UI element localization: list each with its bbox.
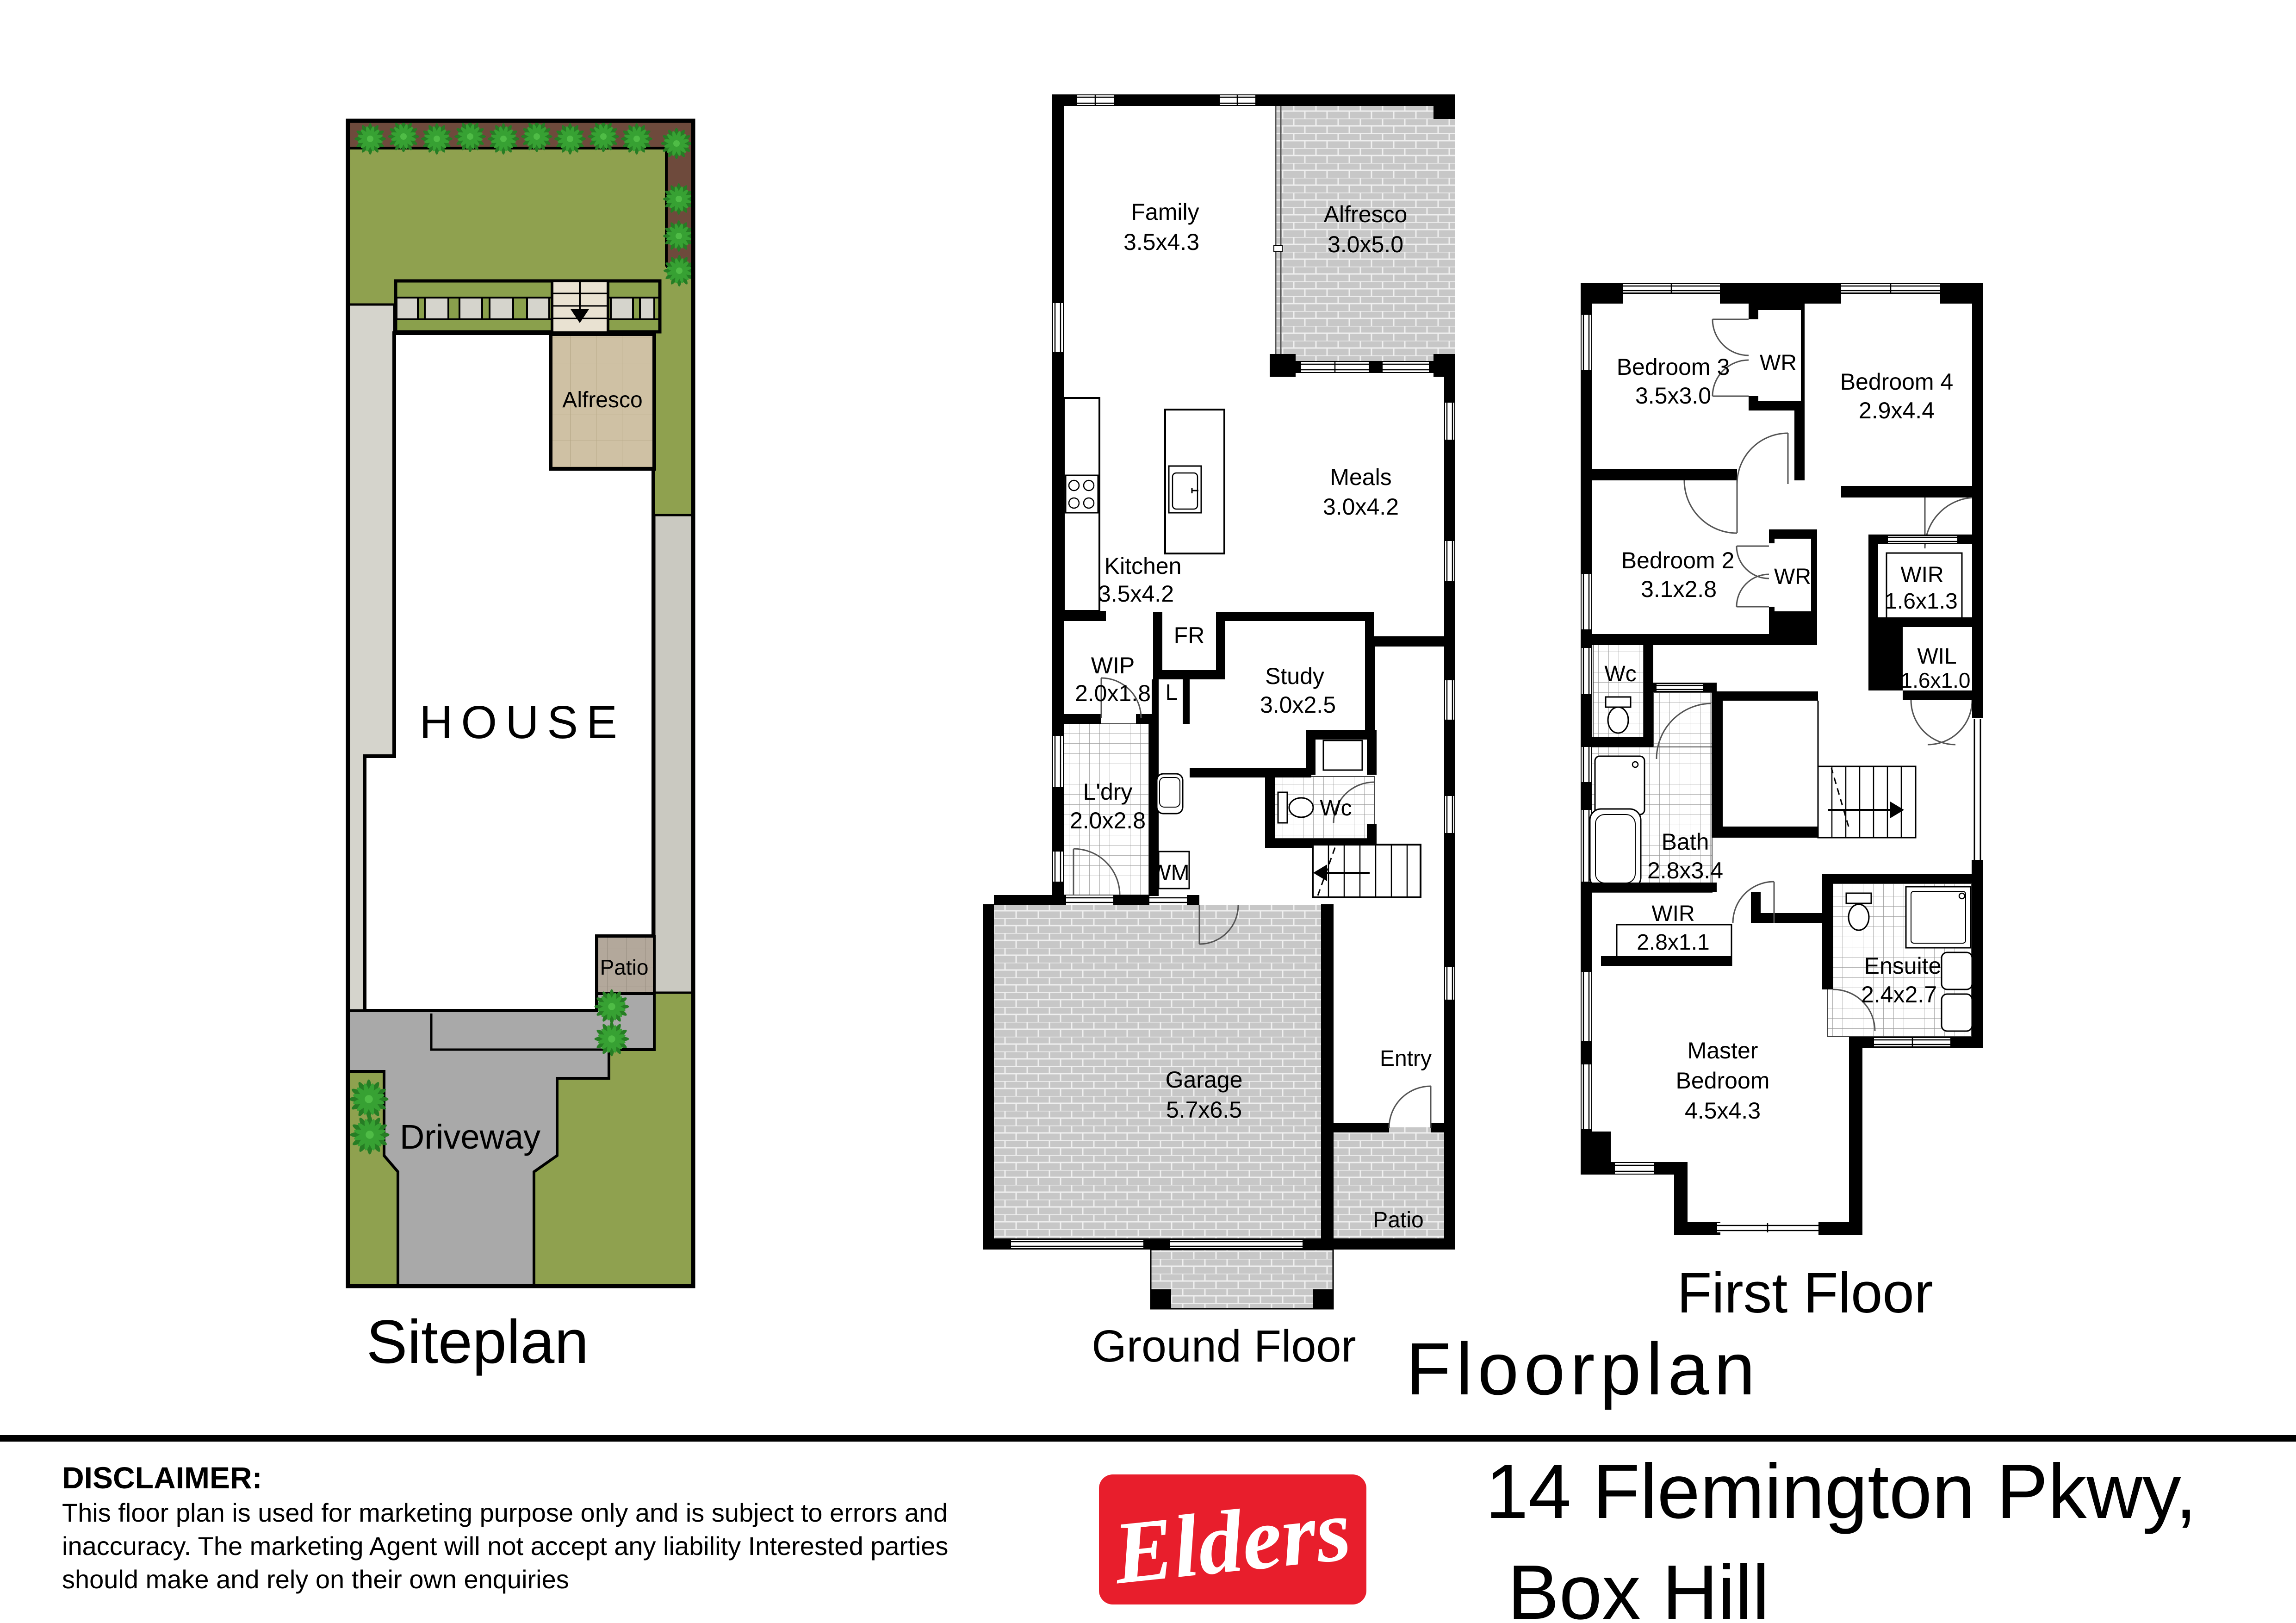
svg-text:Patio: Patio xyxy=(600,955,649,979)
svg-text:Garage: Garage xyxy=(1166,1067,1243,1093)
svg-text:Bedroom 4: Bedroom 4 xyxy=(1840,369,1954,395)
svg-text:Kitchen: Kitchen xyxy=(1105,553,1182,579)
svg-text:1.6x1.3: 1.6x1.3 xyxy=(1885,589,1957,614)
svg-text:WIR: WIR xyxy=(1900,563,1943,587)
svg-text:L'dry: L'dry xyxy=(1083,779,1133,805)
svg-text:FR: FR xyxy=(1174,622,1205,648)
svg-text:3.0x5.0: 3.0x5.0 xyxy=(1328,231,1403,257)
svg-text:Floorplan: Floorplan xyxy=(1406,1327,1760,1410)
svg-text:3.1x2.8: 3.1x2.8 xyxy=(1641,576,1717,602)
svg-text:Entry: Entry xyxy=(1380,1046,1432,1071)
svg-text:3.0x4.2: 3.0x4.2 xyxy=(1323,494,1399,520)
svg-text:Bedroom 3: Bedroom 3 xyxy=(1617,354,1730,380)
svg-text:3.5x4.3: 3.5x4.3 xyxy=(1123,229,1199,255)
svg-text:Wc: Wc xyxy=(1604,662,1636,686)
svg-text:WIL: WIL xyxy=(1917,644,1956,669)
svg-text:1.6x1.0: 1.6x1.0 xyxy=(1901,668,1971,692)
svg-text:WR: WR xyxy=(1774,565,1811,589)
svg-text:Master: Master xyxy=(1688,1038,1758,1063)
svg-text:Box Hill: Box Hill xyxy=(1508,1549,1769,1623)
svg-text:WR: WR xyxy=(1760,351,1797,375)
svg-text:2.4x2.7: 2.4x2.7 xyxy=(1861,982,1937,1007)
svg-text:Ensuite: Ensuite xyxy=(1864,953,1942,979)
svg-text:First Floor: First Floor xyxy=(1677,1262,1933,1325)
svg-text:4.5x4.3: 4.5x4.3 xyxy=(1685,1098,1761,1124)
svg-text:WIP: WIP xyxy=(1091,653,1135,678)
svg-text:L: L xyxy=(1166,680,1178,705)
svg-text:Bedroom: Bedroom xyxy=(1676,1068,1770,1094)
svg-text:3.5x4.2: 3.5x4.2 xyxy=(1098,581,1174,607)
svg-text:HOUSE: HOUSE xyxy=(419,696,626,748)
svg-text:Study: Study xyxy=(1265,663,1324,689)
svg-text:This floor plan is used for ma: This floor plan is used for marketing pu… xyxy=(62,1498,948,1527)
svg-text:inaccuracy. The marketing Agen: inaccuracy. The marketing Agent will not… xyxy=(62,1531,948,1561)
svg-text:2.9x4.4: 2.9x4.4 xyxy=(1859,398,1935,423)
svg-text:2.0x2.8: 2.0x2.8 xyxy=(1070,808,1146,833)
svg-text:WM: WM xyxy=(1150,861,1189,885)
svg-text:Wc: Wc xyxy=(1320,796,1352,821)
svg-text:2.8x1.1: 2.8x1.1 xyxy=(1637,930,1709,955)
svg-text:Ground Floor: Ground Floor xyxy=(1092,1321,1356,1371)
svg-text:Bath: Bath xyxy=(1662,829,1709,855)
svg-text:3.5x3.0: 3.5x3.0 xyxy=(1635,383,1711,409)
svg-text:Family: Family xyxy=(1131,199,1199,225)
svg-text:2.0x1.8: 2.0x1.8 xyxy=(1075,680,1151,706)
svg-text:Patio: Patio xyxy=(1373,1208,1423,1232)
svg-text:DISCLAIMER:: DISCLAIMER: xyxy=(62,1461,262,1495)
svg-text:Driveway: Driveway xyxy=(400,1118,540,1156)
svg-text:Bedroom 2: Bedroom 2 xyxy=(1621,547,1735,573)
svg-text:3.0x2.5: 3.0x2.5 xyxy=(1260,692,1336,718)
svg-text:WIR: WIR xyxy=(1651,902,1694,926)
svg-text:Alfresco: Alfresco xyxy=(1324,201,1408,227)
svg-text:2.8x3.4: 2.8x3.4 xyxy=(1647,858,1723,883)
svg-text:should make and rely on their: should make and rely on their own enquir… xyxy=(62,1565,569,1594)
svg-text:14 Flemington Pkwy,: 14 Flemington Pkwy, xyxy=(1485,1449,2197,1535)
svg-text:Meals: Meals xyxy=(1330,464,1391,490)
svg-text:Siteplan: Siteplan xyxy=(366,1308,589,1376)
svg-text:5.7x6.5: 5.7x6.5 xyxy=(1166,1097,1242,1123)
svg-text:Alfresco: Alfresco xyxy=(562,388,642,412)
